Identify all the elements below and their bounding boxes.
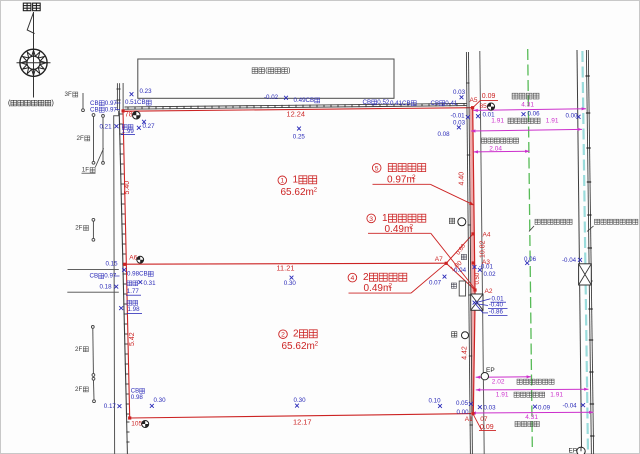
svg-text:0.98CB: 0.98CB <box>127 271 148 278</box>
svg-text:0.09: 0.09 <box>482 93 496 100</box>
svg-text:105: 105 <box>131 421 142 428</box>
svg-text:5.40: 5.40 <box>124 181 131 195</box>
svg-text:A1: A1 <box>465 416 473 423</box>
svg-text:3F: 3F <box>65 91 72 98</box>
svg-text:2F: 2F <box>75 346 82 353</box>
svg-text:1: 1 <box>293 174 299 185</box>
svg-text:0.02: 0.02 <box>484 271 497 278</box>
svg-text:0.06: 0.06 <box>528 111 541 118</box>
svg-text:2.04: 2.04 <box>489 145 502 152</box>
svg-text:0.05: 0.05 <box>456 400 469 407</box>
svg-text:4: 4 <box>351 275 355 282</box>
svg-text:-0.40: -0.40 <box>489 302 504 309</box>
svg-text:10.82: 10.82 <box>480 240 487 258</box>
svg-text:2F: 2F <box>77 135 84 142</box>
svg-text:5: 5 <box>375 165 379 172</box>
svg-text:0.03: 0.03 <box>453 89 466 96</box>
svg-text:5.42: 5.42 <box>129 332 136 346</box>
svg-text:2: 2 <box>314 187 318 194</box>
svg-text:65.62m: 65.62m <box>282 341 315 352</box>
svg-text:-0.02: -0.02 <box>264 94 279 101</box>
svg-text:-0.04: -0.04 <box>562 257 577 264</box>
svg-text:1.91: 1.91 <box>546 118 559 125</box>
svg-text:1.98: 1.98 <box>128 306 141 313</box>
svg-text:1.91: 1.91 <box>491 118 504 125</box>
svg-text:0.25: 0.25 <box>293 134 306 141</box>
svg-text:2: 2 <box>412 174 416 181</box>
svg-text:0.00: 0.00 <box>457 409 470 416</box>
svg-text:0.07: 0.07 <box>429 280 442 287</box>
svg-text:0.49m: 0.49m <box>364 283 392 294</box>
svg-text:85: 85 <box>480 103 488 110</box>
svg-text:CB: CB <box>431 100 440 107</box>
svg-text:3: 3 <box>369 216 373 223</box>
svg-text:0.09: 0.09 <box>480 424 494 431</box>
svg-text:78: 78 <box>125 112 133 119</box>
svg-text:0.10: 0.10 <box>429 398 442 405</box>
svg-text:0.21: 0.21 <box>100 123 113 130</box>
svg-text:CB: CB <box>90 273 99 280</box>
svg-text:4.31: 4.31 <box>525 414 538 421</box>
svg-text:0.00: 0.00 <box>566 113 579 120</box>
svg-text:1.91: 1.91 <box>496 392 509 399</box>
svg-text:1F: 1F <box>82 167 89 174</box>
svg-text:2F: 2F <box>75 386 82 393</box>
svg-text:A4: A4 <box>483 231 491 238</box>
svg-text:12.24: 12.24 <box>287 110 306 119</box>
svg-text:0.17: 0.17 <box>104 403 117 410</box>
svg-text:0.52: 0.52 <box>377 99 390 106</box>
svg-text:A6: A6 <box>129 255 137 262</box>
svg-text:0.18: 0.18 <box>100 284 113 291</box>
svg-text:-0.86: -0.86 <box>489 309 504 316</box>
svg-text:EP: EP <box>569 447 578 454</box>
svg-text:1.77: 1.77 <box>127 288 140 295</box>
svg-text:11.21: 11.21 <box>277 264 295 273</box>
svg-text:0.31: 0.31 <box>144 280 157 287</box>
svg-text:2: 2 <box>293 328 299 339</box>
svg-text:07: 07 <box>480 416 488 423</box>
svg-text:2.02: 2.02 <box>492 379 505 386</box>
svg-text:65.62m: 65.62m <box>281 187 314 198</box>
svg-text:): ) <box>288 68 290 75</box>
svg-text:): ) <box>52 100 54 107</box>
svg-text:2: 2 <box>363 272 369 283</box>
svg-text:2: 2 <box>389 283 393 290</box>
svg-text:0.04: 0.04 <box>454 267 467 274</box>
svg-text:A5: A5 <box>470 97 478 104</box>
svg-text:-0.04: -0.04 <box>563 403 578 410</box>
svg-text:1: 1 <box>280 178 284 185</box>
svg-text:0.50: 0.50 <box>475 272 481 284</box>
svg-text:0.09: 0.09 <box>538 404 551 411</box>
svg-text:2: 2 <box>281 332 285 339</box>
svg-text:A2: A2 <box>485 288 493 295</box>
svg-text:1.99: 1.99 <box>122 128 135 135</box>
svg-text:12.17: 12.17 <box>293 417 312 426</box>
svg-text:0.23: 0.23 <box>140 88 153 95</box>
svg-text:1: 1 <box>382 213 388 224</box>
svg-text:CB: CB <box>363 99 372 106</box>
svg-text:4.42: 4.42 <box>461 346 468 360</box>
svg-text:0.08: 0.08 <box>438 131 451 138</box>
svg-text:0.30: 0.30 <box>154 397 167 404</box>
svg-text:1.91: 1.91 <box>550 392 563 399</box>
svg-text:4.31: 4.31 <box>521 102 534 109</box>
svg-text:2: 2 <box>315 340 319 347</box>
svg-text:2F: 2F <box>75 225 82 232</box>
svg-text:0.15: 0.15 <box>106 261 119 268</box>
svg-text:-0.01: -0.01 <box>479 264 494 271</box>
svg-text:0.30: 0.30 <box>294 397 307 404</box>
svg-text:0.51CB: 0.51CB <box>125 99 146 106</box>
svg-text:0.03: 0.03 <box>453 120 466 127</box>
svg-text:2: 2 <box>410 224 414 231</box>
svg-text:0.49CB: 0.49CB <box>294 97 315 104</box>
svg-text:0.01: 0.01 <box>483 112 496 119</box>
svg-text:-0.01: -0.01 <box>451 113 466 120</box>
svg-text:0.98: 0.98 <box>131 394 144 401</box>
svg-text:CB: CB <box>90 106 99 113</box>
svg-text:0.03: 0.03 <box>484 405 497 412</box>
svg-text:0.41: 0.41 <box>445 100 458 107</box>
svg-text:0.41CB: 0.41CB <box>390 100 411 107</box>
svg-text:4.40: 4.40 <box>459 172 466 186</box>
svg-text:0.27: 0.27 <box>143 123 156 130</box>
svg-text:A7: A7 <box>435 256 443 263</box>
svg-text:0.30: 0.30 <box>284 280 297 287</box>
